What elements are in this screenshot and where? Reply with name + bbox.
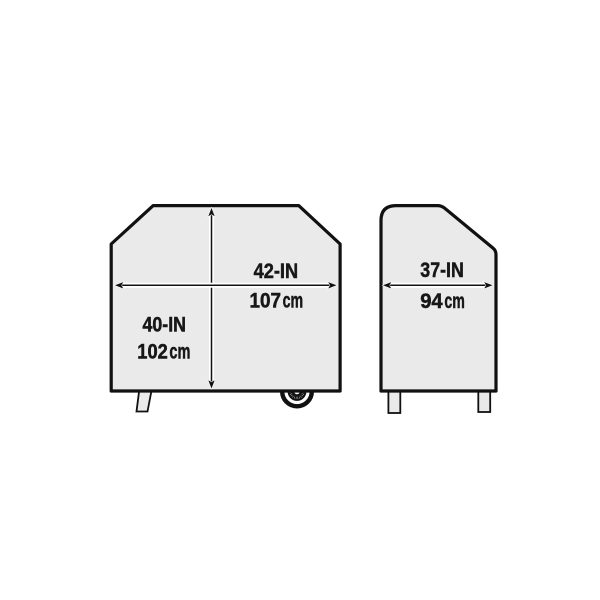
- svg-text:37-IN: 37-IN: [420, 259, 464, 282]
- svg-text:107: 107: [250, 289, 282, 312]
- svg-text:cm: cm: [283, 289, 304, 312]
- svg-text:94: 94: [420, 290, 443, 313]
- svg-text:42-IN: 42-IN: [254, 260, 299, 283]
- svg-text:cm: cm: [444, 290, 465, 313]
- svg-text:102: 102: [137, 341, 168, 364]
- svg-text:40-IN: 40-IN: [143, 314, 187, 337]
- svg-text:cm: cm: [169, 341, 190, 364]
